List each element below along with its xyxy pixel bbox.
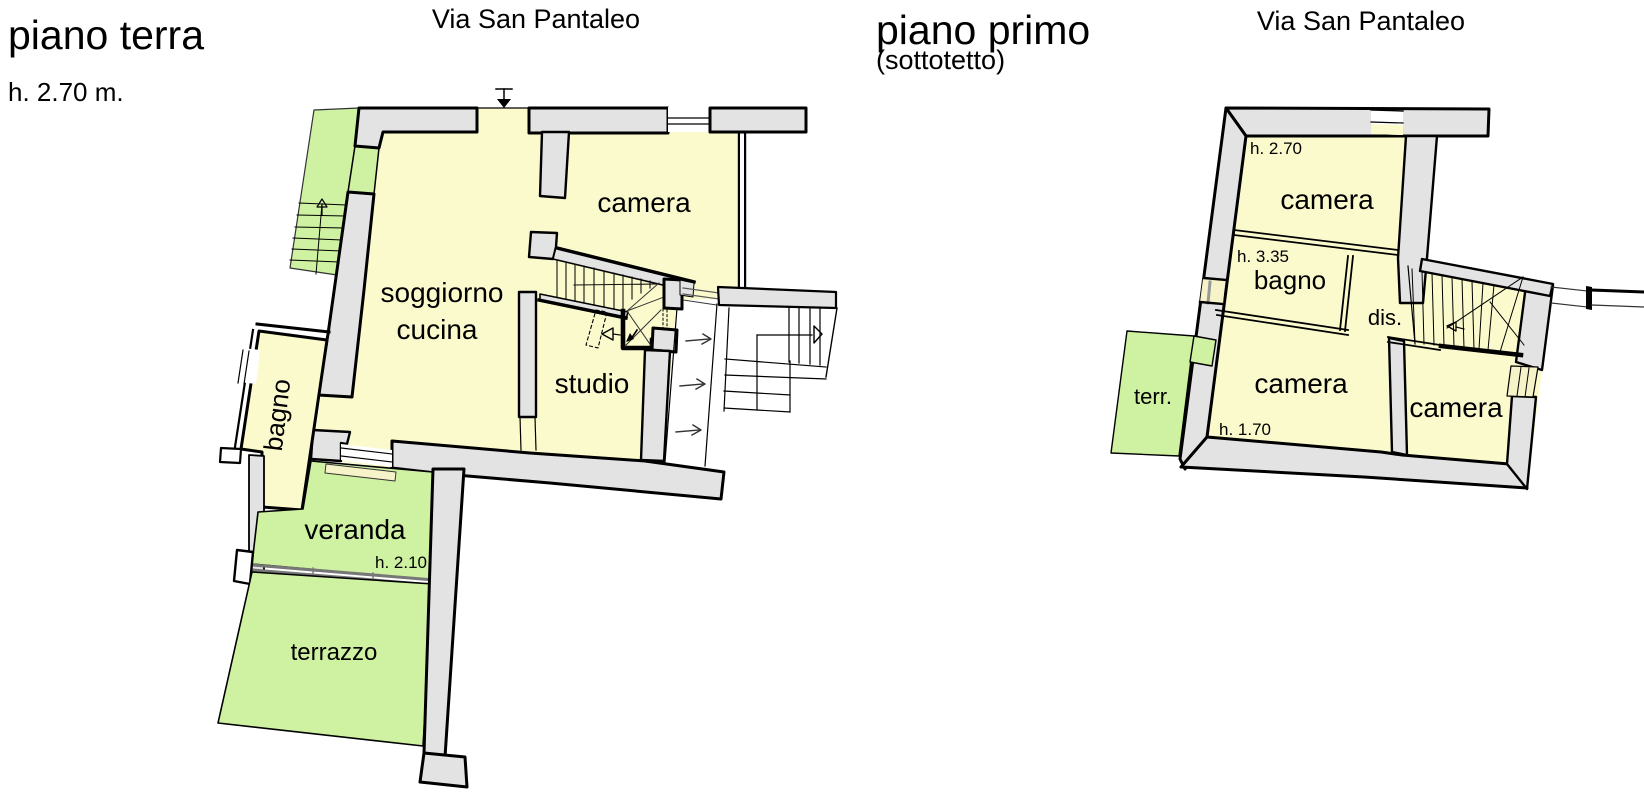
svg-text:dis.: dis.: [1368, 305, 1402, 330]
svg-text:h. 1.70: h. 1.70: [1219, 420, 1271, 439]
svg-text:terrazzo: terrazzo: [291, 639, 378, 666]
svg-text:studio: studio: [555, 368, 630, 399]
svg-text:camera: camera: [1409, 392, 1503, 423]
svg-text:piano terra: piano terra: [8, 12, 204, 58]
svg-text:soggiorno: soggiorno: [381, 277, 504, 308]
svg-text:Via San Pantaleo: Via San Pantaleo: [432, 4, 640, 34]
svg-text:camera: camera: [1280, 184, 1374, 215]
svg-text:h. 2.10: h. 2.10: [375, 553, 427, 572]
svg-text:camera: camera: [597, 187, 691, 218]
svg-text:terr.: terr.: [1134, 384, 1172, 409]
svg-text:Via San Pantaleo: Via San Pantaleo: [1257, 6, 1465, 36]
svg-text:bagno: bagno: [1254, 265, 1326, 295]
svg-text:camera: camera: [1254, 368, 1348, 399]
svg-text:h. 2.70: h. 2.70: [1250, 139, 1302, 158]
svg-text:h. 3.35: h. 3.35: [1237, 247, 1289, 266]
svg-text:h. 2.70 m.: h. 2.70 m.: [8, 77, 124, 107]
svg-text:(sottotetto): (sottotetto): [876, 45, 1005, 75]
svg-text:cucina: cucina: [397, 314, 478, 345]
svg-text:veranda: veranda: [304, 514, 406, 545]
